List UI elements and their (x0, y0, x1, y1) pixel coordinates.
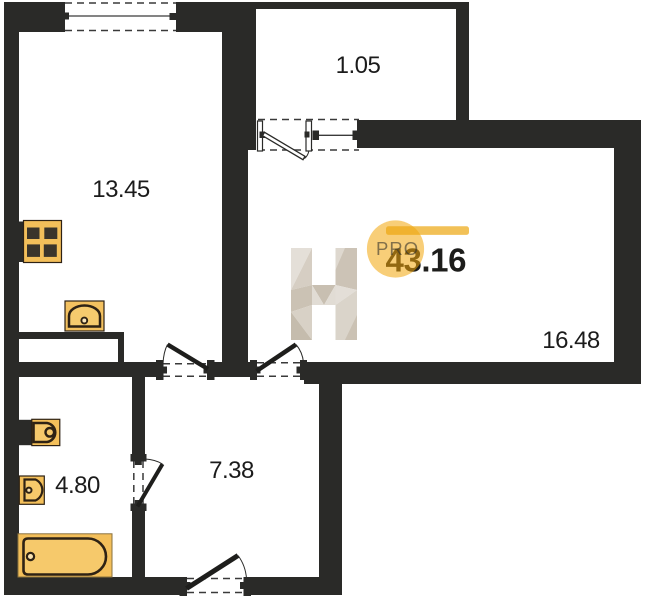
svg-text:1.05: 1.05 (336, 52, 381, 79)
svg-text:7.38: 7.38 (209, 457, 254, 484)
svg-text:13.45: 13.45 (92, 176, 150, 203)
svg-text:4.80: 4.80 (55, 472, 100, 499)
svg-text:16.48: 16.48 (542, 327, 600, 354)
svg-text:PRO: PRO (376, 238, 419, 259)
